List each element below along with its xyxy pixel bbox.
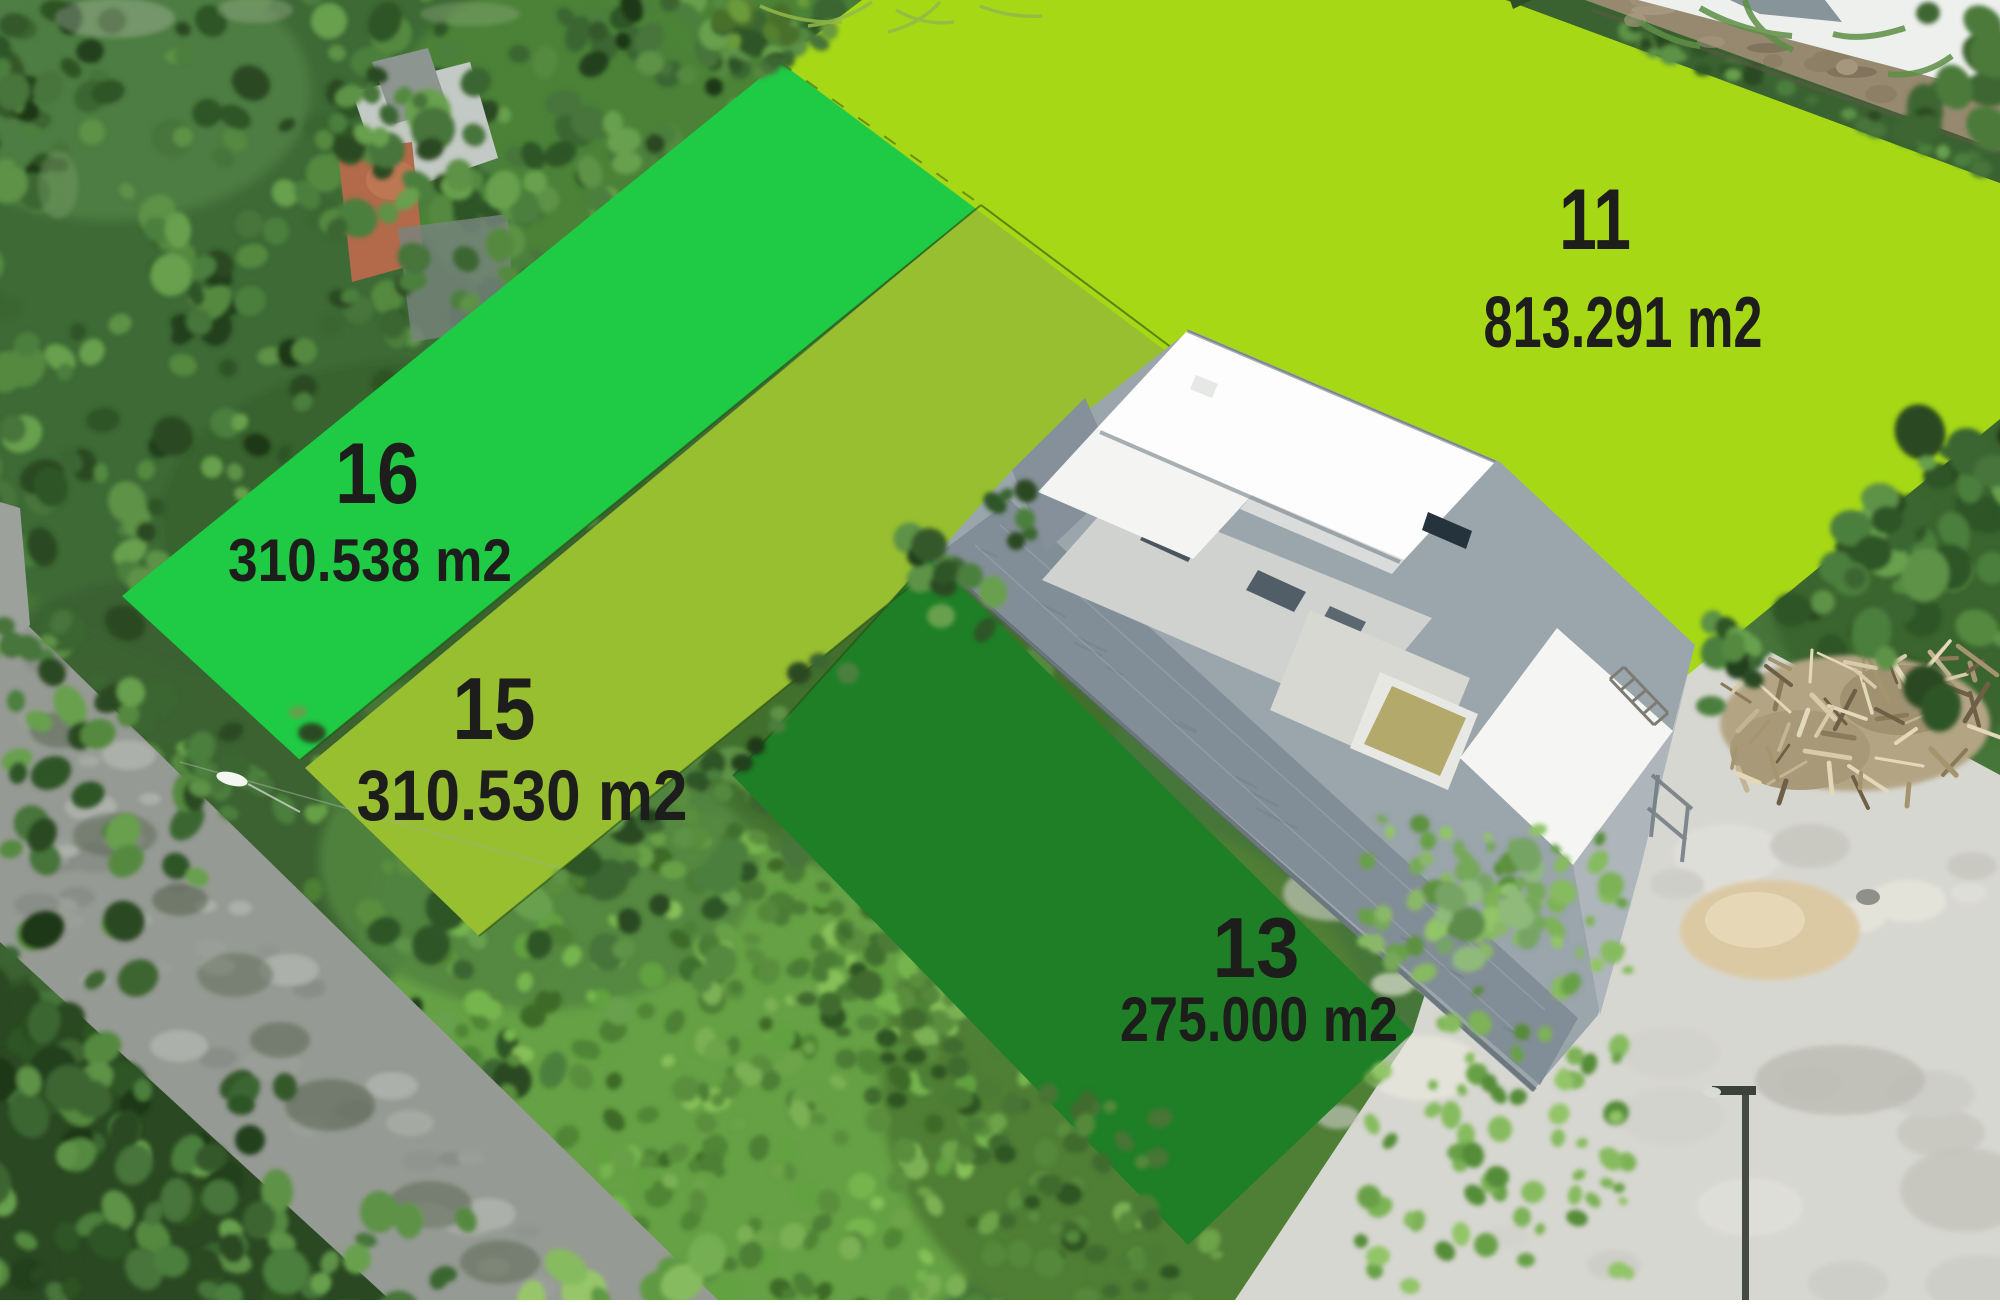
svg-text:310.538 m2: 310.538 m2 — [228, 527, 512, 594]
svg-text:275.000 m2: 275.000 m2 — [1120, 985, 1398, 1055]
svg-text:15: 15 — [453, 659, 536, 758]
svg-text:11: 11 — [1559, 172, 1631, 268]
svg-text:813.291 m2: 813.291 m2 — [1484, 283, 1763, 363]
svg-text:13: 13 — [1213, 901, 1300, 996]
svg-text:16: 16 — [335, 426, 419, 522]
svg-text:310.530 m2: 310.530 m2 — [357, 757, 688, 836]
